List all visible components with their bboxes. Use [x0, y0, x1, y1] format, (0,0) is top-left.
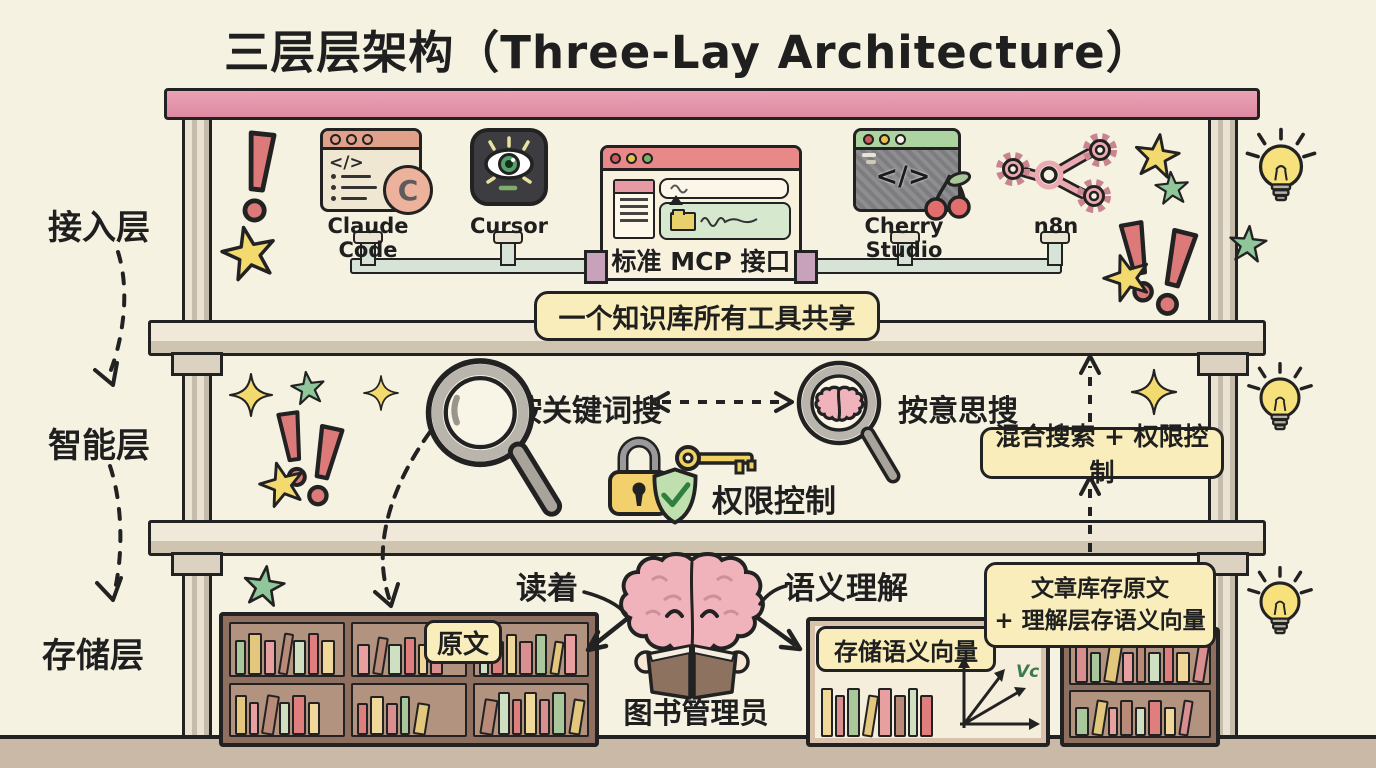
book-spine	[1136, 645, 1146, 683]
book-spine	[506, 634, 517, 675]
pipe-connector-left	[584, 250, 608, 284]
book-spine	[293, 640, 306, 675]
hybrid-search-box: 混合搜索 + 权限控制	[980, 427, 1224, 479]
code-glyph: </>	[329, 153, 364, 173]
book-spine	[279, 702, 290, 735]
book-spine	[519, 641, 533, 675]
page-title: 三层层架构（Three-Lay Architecture）	[0, 16, 1376, 81]
book-spine	[370, 696, 384, 735]
vector-axis-label: Vc	[1016, 662, 1039, 682]
lightbulb-icon	[1242, 362, 1318, 446]
book-spine	[1090, 652, 1101, 683]
book-spine	[847, 688, 860, 737]
book-spine	[821, 688, 833, 737]
book-spine	[400, 696, 410, 735]
sparkle-icon	[364, 376, 398, 410]
book-spine	[920, 695, 933, 737]
book-spine	[1176, 652, 1190, 683]
cherry-studio-label: Cherry Studio	[838, 214, 970, 262]
vector-store-tag: 存储语义向量	[816, 626, 996, 672]
magnifier-icon	[420, 356, 570, 516]
book-spine	[388, 644, 402, 675]
book-spine	[404, 637, 416, 675]
book-spine	[539, 699, 550, 735]
storage-note-line2: + 理解层存语义向量	[994, 605, 1205, 637]
column-cap	[1197, 352, 1249, 376]
lock-icon	[602, 434, 676, 518]
book-spine	[479, 698, 498, 736]
book-spine	[549, 640, 564, 675]
n8n-icon	[996, 132, 1126, 217]
reading-label: 读着	[516, 563, 578, 608]
column-cap	[171, 552, 223, 576]
n8n-label: n8n	[1016, 214, 1096, 238]
storage-note-box: 文章库存原文 + 理解层存语义向量	[984, 562, 1216, 648]
lightbulb-icon	[1242, 566, 1318, 650]
three-layer-architecture-diagram: 三层层架构（Three-Lay Architecture） 接入层 智能层 存储…	[0, 0, 1376, 768]
lightbulb-icon	[1240, 128, 1322, 218]
shelf-top-beam	[164, 88, 1260, 120]
book-spine	[908, 688, 918, 737]
star-icon	[239, 561, 289, 611]
mcp-label: 标准 MCP 接口	[603, 242, 799, 278]
book-spine	[498, 692, 510, 735]
shelf-board-lower	[148, 520, 1266, 556]
keyword-search-label: 按关键词搜	[512, 386, 662, 430]
book-spine	[835, 695, 845, 737]
book-spine	[248, 633, 262, 675]
book-spine	[862, 694, 879, 737]
original-text-bookshelf	[219, 612, 599, 747]
claude-code-icon: </> C	[320, 128, 422, 212]
book-spine	[878, 688, 892, 737]
book-spine	[1164, 707, 1176, 736]
book-spine	[1103, 644, 1123, 684]
label-storage-layer: 存储层	[42, 628, 144, 677]
book-spine	[235, 695, 247, 735]
book-spine	[535, 634, 547, 675]
shelf-left-column	[182, 114, 212, 744]
star-icon	[288, 368, 329, 409]
book-spine	[321, 640, 335, 675]
book-spine	[1148, 652, 1161, 683]
mcp-sidebar	[613, 179, 655, 239]
book-spine	[357, 644, 370, 675]
book-spine	[264, 640, 276, 675]
book-spine	[357, 703, 368, 735]
librarian-brain-icon	[612, 550, 772, 700]
exclamation-icon	[271, 408, 316, 492]
original-text-label: 原文	[437, 624, 489, 661]
book-spine	[894, 695, 906, 737]
storage-note-line1: 文章库存原文	[1031, 573, 1169, 605]
star-icon	[1095, 245, 1158, 308]
shield-check-icon	[648, 466, 702, 526]
book-spine	[1075, 645, 1088, 683]
exclamation-icon	[233, 128, 283, 228]
book-spine	[1135, 707, 1146, 736]
star-icon	[253, 455, 312, 514]
book-spine	[386, 703, 398, 735]
exclamation-icon	[297, 421, 350, 513]
book-spine	[1148, 700, 1162, 736]
permission-label: 权限控制	[712, 476, 836, 521]
exclamation-icon	[1113, 218, 1163, 309]
star-icon	[1130, 129, 1184, 183]
cursor-icon	[468, 126, 550, 208]
book-spine	[564, 634, 577, 675]
shared-banner: 一个知识库所有工具共享	[534, 291, 880, 341]
book-spine	[1163, 645, 1174, 683]
book-spine	[292, 695, 306, 735]
book-spine	[413, 702, 431, 736]
original-text-tag: 原文	[424, 620, 502, 664]
mcp-chat-bubble	[659, 202, 791, 240]
sparkle-icon	[230, 374, 272, 416]
star-icon	[215, 219, 284, 288]
label-intelligence-layer: 智能层	[48, 418, 150, 467]
book-spine	[1122, 652, 1134, 683]
book-spine	[278, 632, 294, 675]
book-spine	[552, 692, 566, 735]
book-spine	[1192, 644, 1210, 683]
book-spine	[261, 694, 280, 736]
claude-window-titlebar	[323, 131, 419, 150]
shared-banner-text: 一个知识库所有工具共享	[559, 297, 856, 336]
book-spine	[568, 698, 585, 735]
sparkle-icon	[1132, 370, 1176, 414]
hybrid-search-text: 混合搜索 + 权限控制	[983, 417, 1221, 489]
semantic-label: 语义理解	[784, 563, 908, 608]
book-spine	[524, 692, 537, 735]
book-spine	[308, 702, 320, 735]
exclamation-icon	[1145, 225, 1204, 323]
book-spine	[372, 636, 389, 675]
book-spine	[235, 640, 246, 675]
librarian-label: 图书管理员	[616, 690, 776, 732]
star-icon	[1152, 168, 1191, 207]
book-spine	[512, 699, 522, 735]
book-spine	[1178, 699, 1194, 736]
pipe-connector-right	[794, 250, 818, 284]
vector-store-label: 存储语义向量	[834, 632, 978, 667]
book-spine	[1075, 707, 1089, 736]
claude-c-badge: C	[383, 165, 433, 215]
book-spine	[1091, 699, 1108, 736]
book-spine	[1108, 707, 1118, 736]
claude-code-label: Claude Code	[298, 214, 438, 262]
book-spine	[1120, 700, 1133, 736]
book-spine	[308, 633, 319, 675]
cursor-label: Cursor	[468, 214, 550, 238]
column-cap	[171, 352, 223, 376]
label-access-layer: 接入层	[48, 200, 150, 249]
mcp-window-icon: 标准 MCP 接口	[600, 145, 802, 281]
cherry-studio-icon: </>	[853, 128, 961, 212]
book-spine	[249, 702, 259, 735]
